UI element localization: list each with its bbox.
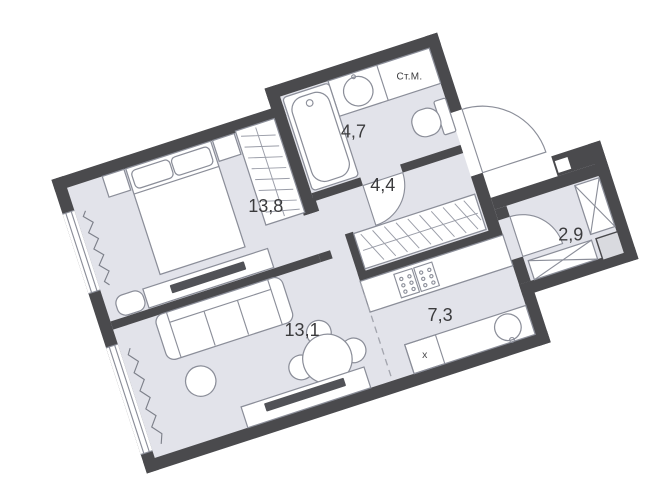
bathroom-area-label: 4,7 [341, 121, 366, 141]
floor-plan-canvas: 13,8 4,7 4,4 13,1 7,3 2,9 Ст.М. x [0, 0, 657, 486]
hallway-area-label: 4,4 [370, 175, 395, 195]
bedroom-area-label: 13,8 [248, 196, 283, 216]
kitchen-unit-x-label: x [422, 350, 428, 361]
storage-area-label: 2,9 [558, 225, 583, 245]
living-area-label: 13,1 [285, 320, 320, 340]
floor-plan: 13,8 4,7 4,4 13,1 7,3 2,9 Ст.М. x [0, 0, 657, 486]
kitchen-area-label: 7,3 [428, 305, 453, 325]
washing-machine-label: Ст.М. [396, 71, 422, 82]
